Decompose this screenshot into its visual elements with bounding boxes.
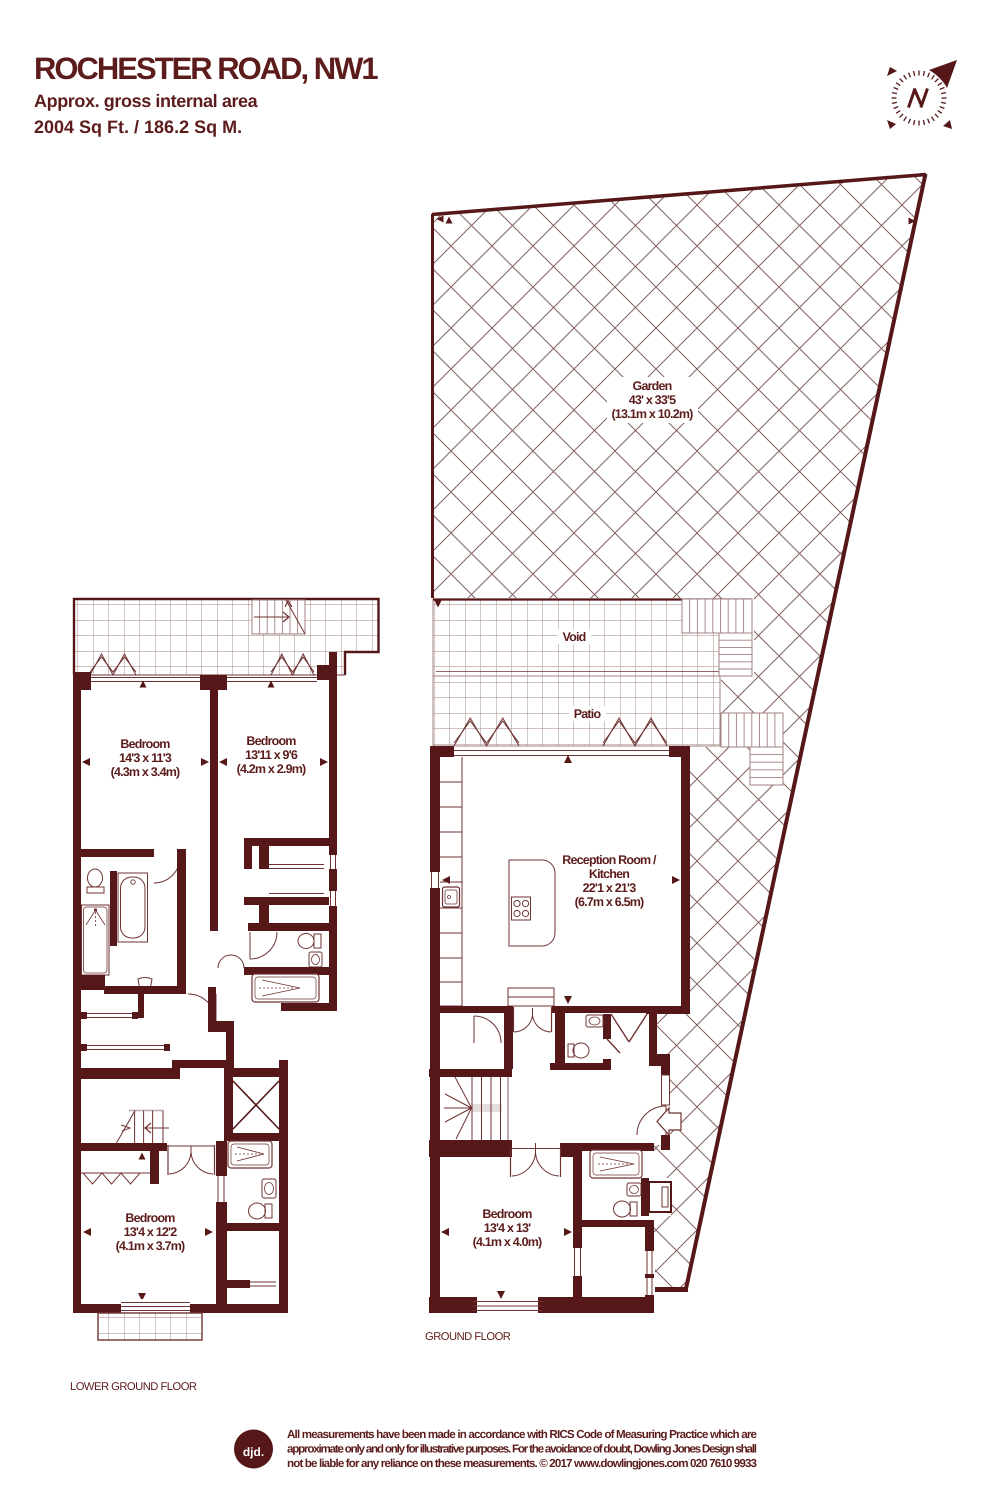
svg-text:Void: Void (563, 630, 586, 644)
svg-text:14'3 x 11'3: 14'3 x 11'3 (119, 751, 172, 765)
svg-text:not be liable for any reliance: not be liable for any reliance on these … (287, 1457, 758, 1470)
svg-text:Bedroom: Bedroom (125, 1211, 175, 1225)
svg-text:(4.1m x 4.0m): (4.1m x 4.0m) (473, 1235, 542, 1249)
svg-text:(4.2m x 2.9m): (4.2m x 2.9m) (237, 762, 306, 776)
svg-text:(6.7m x 6.5m): (6.7m x 6.5m) (575, 895, 644, 909)
svg-text:(13.1m x 10.2m): (13.1m x 10.2m) (611, 407, 693, 421)
svg-text:Approx. gross internal area: Approx. gross internal area (34, 91, 259, 111)
svg-text:GROUND FLOOR: GROUND FLOOR (425, 1331, 511, 1343)
svg-text:22'1 x 21'3: 22'1 x 21'3 (583, 881, 637, 895)
svg-text:ROCHESTER ROAD, NW1: ROCHESTER ROAD, NW1 (34, 51, 378, 86)
svg-text:43' x 33'5: 43' x 33'5 (629, 393, 676, 407)
svg-text:2004 Sq Ft. / 186.2 Sq M.: 2004 Sq Ft. / 186.2 Sq M. (34, 117, 242, 137)
svg-text:Bedroom: Bedroom (120, 737, 170, 751)
svg-text:(4.1m x 3.7m): (4.1m x 3.7m) (116, 1239, 185, 1253)
svg-text:LOWER GROUND FLOOR: LOWER GROUND FLOOR (70, 1381, 197, 1393)
svg-text:Garden: Garden (633, 379, 672, 393)
svg-text:djd.: djd. (243, 1445, 264, 1459)
svg-text:13'4 x 12'2: 13'4 x 12'2 (124, 1225, 178, 1239)
svg-text:All measurements have been mad: All measurements have been made in accor… (287, 1428, 758, 1441)
svg-text:(4.3m x 3.4m): (4.3m x 3.4m) (111, 765, 180, 779)
svg-text:Reception Room /: Reception Room / (562, 853, 657, 867)
svg-text:Kitchen: Kitchen (589, 867, 629, 881)
svg-text:Bedroom: Bedroom (246, 734, 296, 748)
svg-text:13'11 x 9'6: 13'11 x 9'6 (245, 748, 298, 762)
svg-text:approximate only and only for: approximate only and only for illustrati… (287, 1443, 757, 1456)
svg-text:Patio: Patio (574, 707, 602, 721)
svg-text:13'4 x 13': 13'4 x 13' (484, 1221, 531, 1235)
svg-text:Bedroom: Bedroom (482, 1207, 532, 1221)
